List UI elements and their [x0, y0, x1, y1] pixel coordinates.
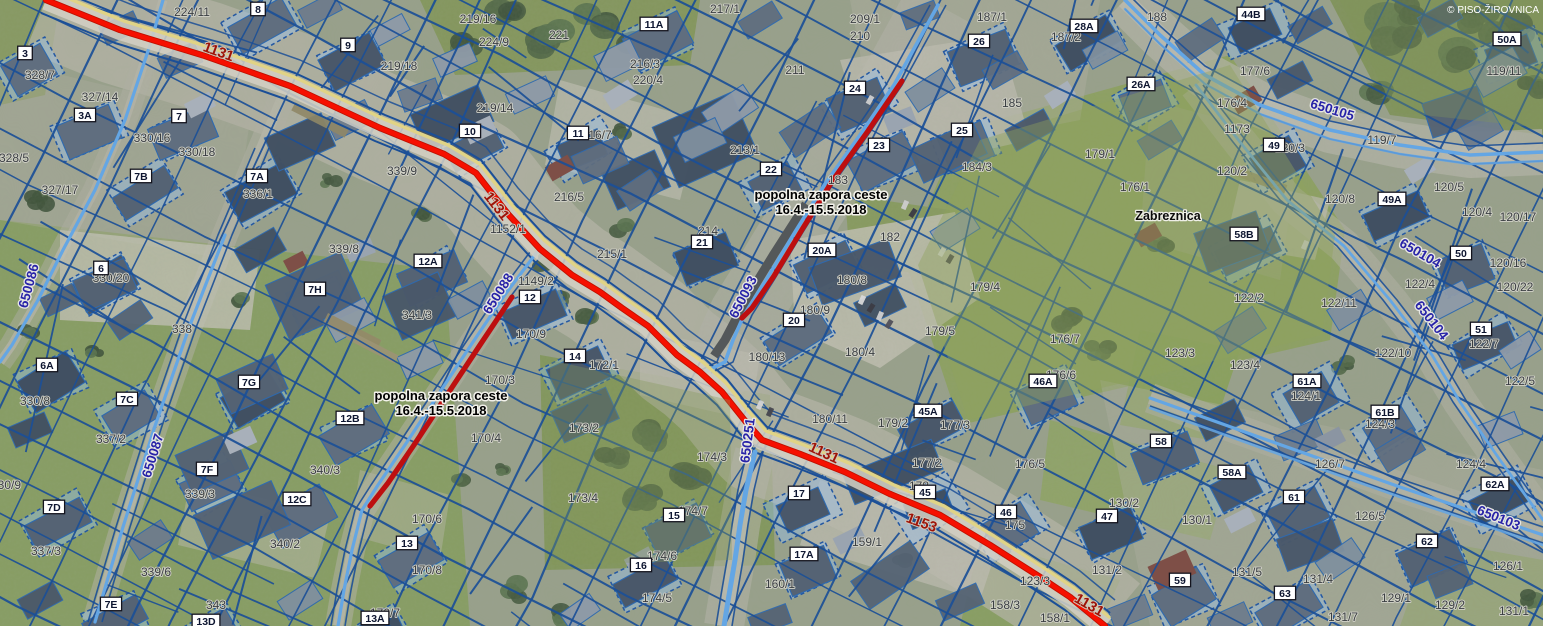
svg-text:219/18: 219/18 — [381, 59, 418, 73]
svg-text:131/5: 131/5 — [1232, 565, 1262, 579]
svg-text:336/1: 336/1 — [243, 187, 273, 201]
svg-text:23: 23 — [873, 140, 885, 152]
svg-text:120/22: 120/22 — [1497, 280, 1534, 294]
svg-text:158/1: 158/1 — [1040, 611, 1070, 625]
svg-text:343: 343 — [206, 598, 226, 612]
svg-text:45: 45 — [919, 487, 931, 499]
svg-text:182: 182 — [880, 230, 900, 244]
svg-text:337/2: 337/2 — [96, 432, 126, 446]
svg-text:174/5: 174/5 — [642, 591, 672, 605]
svg-text:6A: 6A — [40, 360, 54, 372]
svg-text:209/1: 209/1 — [850, 12, 880, 26]
svg-text:188: 188 — [1147, 10, 1167, 24]
svg-text:7G: 7G — [242, 377, 256, 389]
svg-text:62A: 62A — [1485, 479, 1505, 491]
svg-text:124/1: 124/1 — [1291, 389, 1321, 403]
svg-text:1173: 1173 — [1224, 122, 1250, 136]
svg-text:177/3: 177/3 — [940, 418, 970, 432]
svg-text:177/6: 177/6 — [1240, 64, 1270, 78]
svg-text:1152/1: 1152/1 — [490, 222, 526, 236]
svg-text:47: 47 — [1101, 511, 1113, 523]
svg-text:170/8: 170/8 — [412, 563, 442, 577]
svg-text:1149/2: 1149/2 — [518, 274, 554, 288]
svg-text:173/4: 173/4 — [568, 491, 598, 505]
svg-text:7A: 7A — [250, 171, 264, 183]
svg-text:130/2: 130/2 — [1109, 496, 1139, 510]
svg-text:popolna zapora ceste: popolna zapora ceste — [375, 388, 508, 403]
svg-text:49A: 49A — [1382, 194, 1402, 206]
svg-text:224/9: 224/9 — [479, 35, 509, 49]
svg-text:20: 20 — [788, 315, 800, 327]
svg-text:183: 183 — [828, 173, 848, 187]
svg-text:59: 59 — [1174, 575, 1186, 587]
svg-text:12C: 12C — [287, 494, 307, 506]
svg-text:179/4: 179/4 — [970, 280, 1000, 294]
svg-text:330/9: 330/9 — [0, 478, 21, 492]
svg-text:122/2: 122/2 — [1234, 291, 1264, 305]
svg-text:124/4: 124/4 — [1456, 457, 1486, 471]
svg-text:62: 62 — [1421, 536, 1433, 548]
svg-text:11: 11 — [572, 128, 583, 140]
svg-text:219/14: 219/14 — [477, 101, 514, 115]
svg-text:339/8: 339/8 — [329, 242, 359, 256]
svg-text:158/3: 158/3 — [990, 598, 1020, 612]
svg-text:14: 14 — [569, 351, 581, 363]
svg-text:173/2: 173/2 — [569, 421, 599, 435]
svg-text:170/3: 170/3 — [485, 373, 515, 387]
svg-text:211: 211 — [785, 63, 804, 77]
svg-text:179/5: 179/5 — [925, 324, 955, 338]
svg-text:16.4.-15.5.2018: 16.4.-15.5.2018 — [775, 202, 866, 217]
svg-text:7H: 7H — [308, 284, 321, 296]
svg-text:122/11: 122/11 — [1321, 296, 1357, 310]
svg-text:7F: 7F — [201, 464, 214, 476]
svg-text:170/9: 170/9 — [516, 327, 546, 341]
svg-text:61B: 61B — [1375, 407, 1395, 419]
svg-text:26A: 26A — [1131, 79, 1151, 91]
svg-text:328/7: 328/7 — [25, 68, 55, 82]
svg-text:176/7: 176/7 — [1050, 332, 1080, 346]
svg-text:122/7: 122/7 — [1469, 337, 1499, 351]
svg-text:16.4.-15.5.2018: 16.4.-15.5.2018 — [395, 403, 486, 418]
svg-text:123/4: 123/4 — [1230, 358, 1260, 372]
svg-text:8: 8 — [255, 4, 261, 16]
svg-text:46: 46 — [1000, 507, 1012, 519]
svg-text:12B: 12B — [340, 413, 360, 425]
svg-text:7E: 7E — [105, 599, 118, 611]
svg-text:49: 49 — [1268, 140, 1280, 152]
svg-text:215/1: 215/1 — [597, 247, 627, 261]
svg-text:3A: 3A — [78, 110, 92, 122]
svg-text:159/1: 159/1 — [852, 535, 882, 549]
svg-text:187/1: 187/1 — [977, 10, 1007, 24]
svg-text:58B: 58B — [1234, 229, 1254, 241]
svg-text:20A: 20A — [812, 245, 832, 257]
svg-text:216/5: 216/5 — [554, 190, 584, 204]
svg-text:119/7: 119/7 — [1367, 133, 1396, 147]
svg-text:26: 26 — [973, 36, 985, 48]
svg-text:340/2: 340/2 — [270, 537, 300, 551]
svg-text:340/3: 340/3 — [310, 463, 340, 477]
svg-text:180/4: 180/4 — [845, 345, 875, 359]
svg-text:176/5: 176/5 — [1015, 457, 1045, 471]
svg-text:123/3: 123/3 — [1165, 346, 1195, 360]
svg-text:330/16: 330/16 — [134, 131, 171, 145]
svg-text:131/1: 131/1 — [1499, 604, 1529, 618]
svg-text:11A: 11A — [645, 19, 664, 31]
svg-text:213/1: 213/1 — [730, 143, 760, 157]
svg-text:13D: 13D — [196, 616, 216, 626]
svg-text:180/8: 180/8 — [837, 273, 867, 287]
svg-text:185: 185 — [1002, 96, 1022, 110]
svg-text:327/14: 327/14 — [82, 90, 119, 104]
svg-text:176/1: 176/1 — [1120, 180, 1150, 194]
svg-text:179/1: 179/1 — [1085, 147, 1115, 161]
svg-text:172/1: 172/1 — [589, 358, 619, 372]
svg-text:28A: 28A — [1074, 21, 1094, 33]
svg-text:13A: 13A — [365, 613, 385, 625]
svg-text:160/1: 160/1 — [765, 577, 795, 591]
svg-text:131/2: 131/2 — [1092, 563, 1122, 577]
svg-text:51: 51 — [1475, 324, 1487, 336]
svg-text:129/1: 129/1 — [1381, 591, 1411, 605]
svg-text:21: 21 — [696, 237, 708, 249]
svg-text:179/2: 179/2 — [878, 416, 908, 430]
svg-text:22: 22 — [765, 164, 777, 176]
svg-text:130/1: 130/1 — [1182, 513, 1212, 527]
svg-text:330/8: 330/8 — [20, 394, 50, 408]
svg-text:12A: 12A — [418, 256, 438, 268]
svg-text:170/6: 170/6 — [412, 512, 442, 526]
svg-text:58A: 58A — [1222, 467, 1242, 479]
svg-text:24: 24 — [849, 83, 861, 95]
svg-text:176/4: 176/4 — [1217, 96, 1247, 110]
svg-text:175: 175 — [1005, 518, 1025, 532]
svg-text:10: 10 — [464, 126, 476, 138]
svg-text:131/4: 131/4 — [1303, 572, 1333, 586]
svg-text:339/3: 339/3 — [185, 487, 215, 501]
svg-text:popolna zapora ceste: popolna zapora ceste — [755, 187, 888, 202]
svg-text:129/2: 129/2 — [1435, 598, 1465, 612]
svg-text:224/11: 224/11 — [174, 5, 210, 19]
svg-text:174/3: 174/3 — [697, 450, 727, 464]
svg-text:120/5: 120/5 — [1434, 180, 1464, 194]
svg-text:120/16: 120/16 — [1490, 256, 1527, 270]
svg-text:7D: 7D — [47, 502, 61, 514]
svg-text:61: 61 — [1288, 492, 1300, 504]
svg-text:6: 6 — [98, 263, 104, 275]
svg-text:131/7: 131/7 — [1328, 610, 1358, 624]
svg-text:15: 15 — [668, 510, 680, 522]
svg-text:120/2: 120/2 — [1217, 164, 1247, 178]
svg-text:122/5: 122/5 — [1505, 374, 1535, 388]
svg-text:63: 63 — [1279, 588, 1291, 600]
svg-text:50A: 50A — [1497, 34, 1517, 46]
svg-text:219/16: 219/16 — [460, 12, 497, 26]
svg-text:120/17: 120/17 — [1500, 210, 1537, 224]
svg-text:7: 7 — [176, 111, 182, 123]
svg-text:50: 50 — [1455, 248, 1467, 260]
svg-text:12: 12 — [524, 292, 536, 304]
svg-text:17: 17 — [793, 488, 805, 500]
svg-text:46A: 46A — [1033, 376, 1053, 388]
svg-text:9: 9 — [345, 40, 351, 52]
svg-text:3: 3 — [22, 48, 28, 60]
svg-text:61A: 61A — [1297, 376, 1317, 388]
svg-text:177/2: 177/2 — [912, 456, 942, 470]
svg-text:44B: 44B — [1241, 9, 1261, 21]
svg-text:341/3: 341/3 — [402, 308, 432, 322]
svg-text:Zabreznica: Zabreznica — [1135, 209, 1201, 223]
svg-text:184/3: 184/3 — [962, 160, 992, 174]
svg-text:7C: 7C — [120, 394, 134, 406]
svg-text:17A: 17A — [794, 549, 814, 561]
svg-text:120/8: 120/8 — [1325, 192, 1355, 206]
svg-text:126/7: 126/7 — [1315, 457, 1345, 471]
svg-text:16: 16 — [635, 560, 647, 572]
svg-text:216/3: 216/3 — [630, 57, 660, 71]
svg-text:126/1: 126/1 — [1493, 559, 1523, 573]
svg-text:58: 58 — [1155, 436, 1167, 448]
svg-text:25: 25 — [956, 125, 968, 137]
svg-text:210: 210 — [850, 29, 870, 43]
svg-text:170/4: 170/4 — [471, 431, 501, 445]
svg-text:122/10: 122/10 — [1375, 346, 1412, 360]
svg-text:327/17: 327/17 — [42, 183, 79, 197]
svg-text:217/1: 217/1 — [710, 2, 740, 16]
svg-text:122/4: 122/4 — [1405, 277, 1435, 291]
svg-text:16/7: 16/7 — [588, 128, 612, 142]
svg-text:180/13: 180/13 — [749, 350, 786, 364]
svg-text:221: 221 — [549, 28, 569, 42]
svg-text:119/11: 119/11 — [1487, 64, 1522, 78]
svg-text:© PISO-ŽIROVNICA: © PISO-ŽIROVNICA — [1447, 3, 1539, 16]
svg-text:120/4: 120/4 — [1462, 205, 1492, 219]
svg-text:220/4: 220/4 — [633, 73, 663, 87]
svg-text:328/5: 328/5 — [0, 151, 29, 165]
svg-text:330/18: 330/18 — [179, 145, 216, 159]
svg-text:45A: 45A — [918, 406, 938, 418]
svg-text:339/6: 339/6 — [141, 565, 171, 579]
svg-text:13: 13 — [401, 538, 413, 550]
svg-text:123/3: 123/3 — [1020, 574, 1050, 588]
svg-text:339/9: 339/9 — [387, 164, 417, 178]
svg-text:180/11: 180/11 — [812, 412, 848, 426]
svg-text:338: 338 — [172, 322, 192, 336]
svg-text:337/3: 337/3 — [31, 544, 61, 558]
svg-text:7B: 7B — [134, 171, 148, 183]
svg-text:126/5: 126/5 — [1355, 509, 1385, 523]
